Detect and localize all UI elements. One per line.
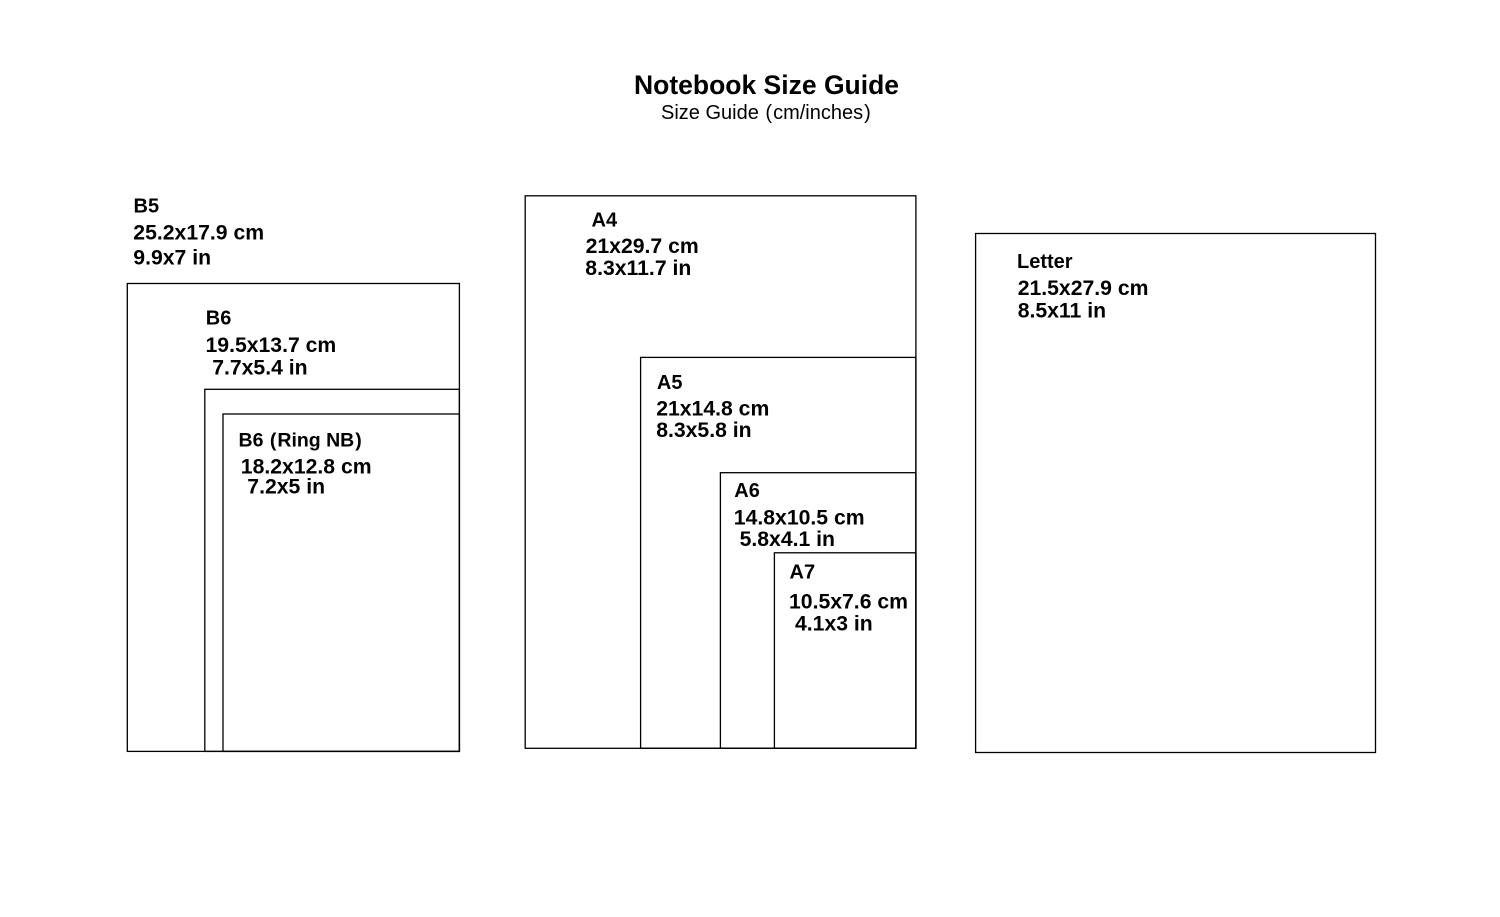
svg-text:8.5x11 in: 8.5x11 in [1018, 300, 1106, 323]
svg-text:A6: A6 [734, 480, 760, 502]
svg-text:21x29.7 cm: 21x29.7 cm [586, 235, 699, 258]
svg-text:Letter: Letter [1017, 251, 1073, 273]
svg-text:4.1x3 in: 4.1x3 in [795, 612, 873, 635]
svg-text:7.2x5 in: 7.2x5 in [247, 476, 325, 499]
svg-text:25.2x17.9 cm: 25.2x17.9 cm [133, 222, 264, 245]
svg-text:B6: B6 [206, 308, 232, 330]
svg-text:A4: A4 [592, 209, 618, 231]
svg-text:14.8x10.5 cm: 14.8x10.5 cm [734, 507, 865, 530]
svg-text:A7: A7 [790, 561, 816, 583]
svg-text:10.5x7.6 cm: 10.5x7.6 cm [789, 590, 908, 613]
svg-text:8.3x5.8 in: 8.3x5.8 in [656, 419, 751, 442]
svg-text:8.3x11.7 in: 8.3x11.7 in [585, 257, 691, 280]
svg-text:9.9x7 in: 9.9x7 in [133, 247, 211, 270]
svg-text:B5: B5 [134, 196, 160, 218]
svg-text:A5: A5 [657, 372, 683, 394]
svg-text:19.5x13.7 cm: 19.5x13.7 cm [206, 334, 337, 357]
svg-text:Size Guide (cm/inches): Size Guide (cm/inches) [661, 102, 871, 124]
svg-text:B6 (Ring NB): B6 (Ring NB) [239, 429, 362, 451]
svg-text:21.5x27.9 cm: 21.5x27.9 cm [1018, 277, 1149, 300]
svg-text:Notebook Size Guide: Notebook Size Guide [634, 70, 899, 100]
svg-text:7.7x5.4 in: 7.7x5.4 in [212, 357, 307, 380]
svg-text:21x14.8 cm: 21x14.8 cm [656, 398, 769, 421]
svg-text:5.8x4.1 in: 5.8x4.1 in [740, 528, 835, 551]
